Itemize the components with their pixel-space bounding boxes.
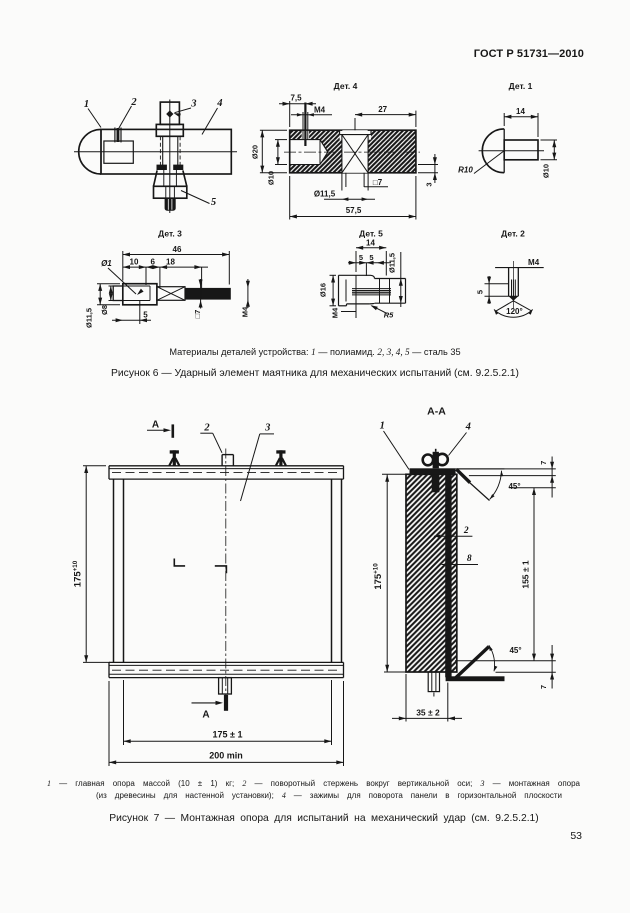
svg-text:46: 46	[173, 245, 182, 254]
svg-text:200 min: 200 min	[209, 751, 243, 761]
svg-text:□7: □7	[193, 310, 202, 319]
svg-text:120°: 120°	[506, 307, 523, 316]
svg-text:А-А: А-А	[427, 406, 446, 418]
svg-text:35 ± 2: 35 ± 2	[416, 708, 440, 718]
svg-text:А: А	[152, 420, 159, 431]
svg-text:2: 2	[203, 423, 210, 434]
svg-text:45°: 45°	[508, 482, 520, 491]
svg-text:M4: M4	[331, 307, 340, 318]
svg-text:R10: R10	[458, 166, 473, 175]
svg-text:Ø20: Ø20	[251, 145, 260, 159]
svg-text:8: 8	[467, 554, 472, 564]
svg-text:175+10: 175+10	[373, 563, 385, 590]
svg-text:175 ± 1: 175 ± 1	[213, 730, 243, 740]
svg-text:Дет. 5: Дет. 5	[359, 229, 383, 239]
svg-text:Ø11,5: Ø11,5	[314, 190, 336, 199]
svg-text:5: 5	[143, 311, 148, 320]
svg-text:155 ± 1: 155 ± 1	[521, 560, 531, 589]
svg-text:M4: M4	[240, 306, 249, 317]
svg-text:А: А	[202, 710, 209, 721]
svg-text:5: 5	[359, 253, 363, 262]
svg-text:□7: □7	[373, 178, 383, 187]
svg-text:3: 3	[264, 423, 270, 434]
svg-text:Дет. 2: Дет. 2	[501, 229, 525, 239]
svg-text:6: 6	[150, 257, 155, 266]
svg-text:175+10: 175+10	[72, 560, 84, 587]
svg-text:27: 27	[378, 105, 387, 114]
svg-text:45°: 45°	[509, 646, 521, 655]
svg-text:Ø16: Ø16	[319, 283, 328, 297]
svg-text:7,5: 7,5	[290, 94, 302, 103]
svg-text:57,5: 57,5	[346, 206, 362, 215]
svg-text:Дет. 3: Дет. 3	[158, 229, 182, 239]
svg-text:Дет. 1: Дет. 1	[509, 81, 533, 91]
svg-text:14: 14	[366, 238, 375, 247]
svg-text:3: 3	[190, 99, 196, 110]
svg-text:Ø1: Ø1	[101, 259, 112, 268]
svg-text:1: 1	[380, 421, 385, 432]
svg-text:Ø10: Ø10	[542, 164, 551, 178]
svg-text:Дет. 4: Дет. 4	[334, 81, 358, 91]
svg-text:M4: M4	[314, 106, 326, 115]
svg-text:5: 5	[369, 253, 373, 262]
svg-text:18: 18	[166, 257, 175, 266]
svg-text:14: 14	[516, 107, 525, 116]
svg-text:5: 5	[211, 197, 216, 208]
svg-text:Ø10: Ø10	[267, 171, 276, 185]
svg-text:3: 3	[424, 182, 433, 186]
svg-text:M4: M4	[528, 258, 540, 267]
svg-text:2: 2	[463, 526, 469, 536]
svg-text:Ø8: Ø8	[100, 305, 109, 315]
svg-text:10: 10	[130, 257, 139, 266]
svg-text:4: 4	[465, 422, 471, 433]
svg-text:7: 7	[539, 461, 548, 465]
svg-text:Ø11,5: Ø11,5	[85, 308, 94, 328]
svg-text:5: 5	[475, 290, 484, 294]
svg-text:7: 7	[539, 685, 548, 689]
svg-text:4: 4	[216, 98, 222, 109]
svg-text:R5: R5	[384, 311, 394, 320]
svg-text:Ø11,5: Ø11,5	[388, 253, 397, 273]
